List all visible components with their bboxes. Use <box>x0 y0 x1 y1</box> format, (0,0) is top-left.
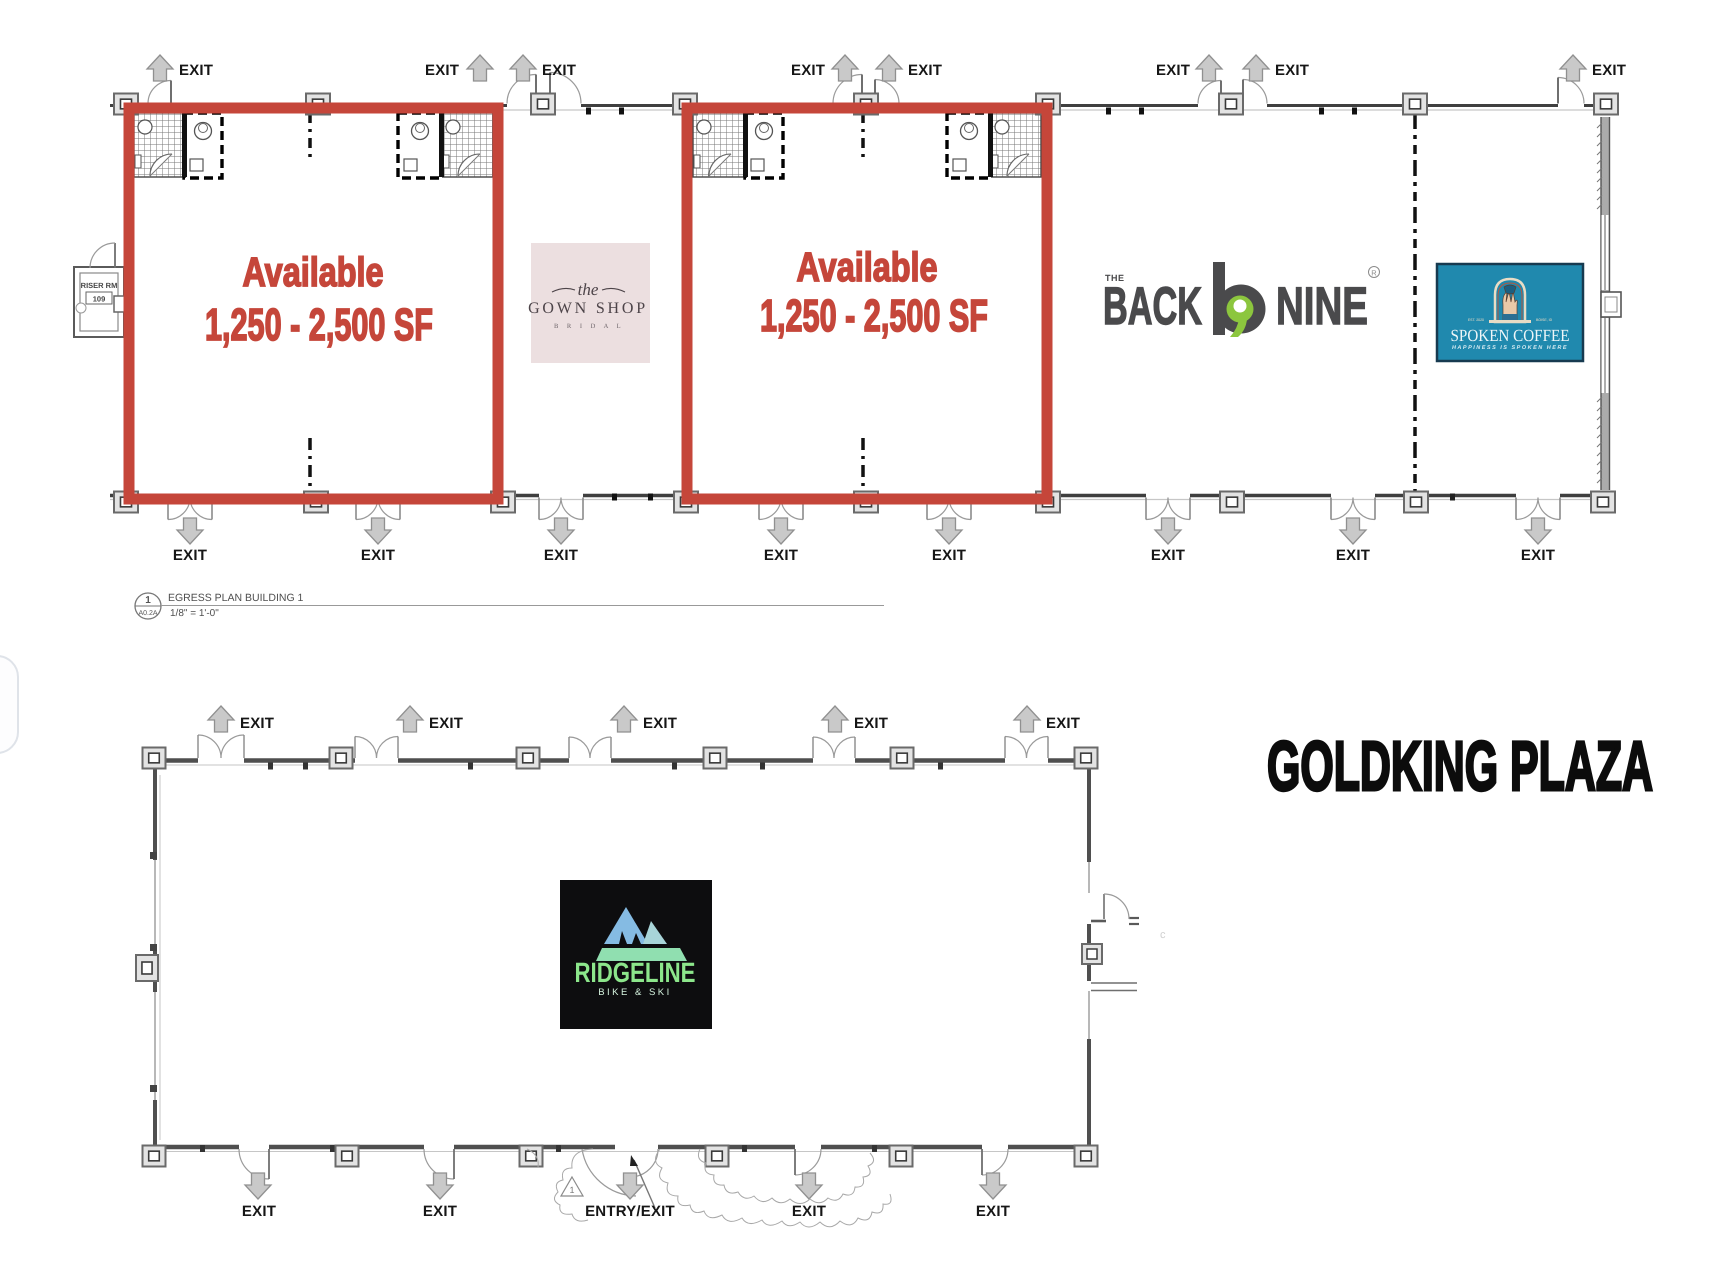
svg-text:EXIT: EXIT <box>1592 62 1626 79</box>
svg-text:EXIT: EXIT <box>932 547 966 564</box>
svg-text:GOWN SHOP: GOWN SHOP <box>528 300 648 317</box>
svg-text:EST. 2020: EST. 2020 <box>1468 318 1484 322</box>
svg-text:NINE: NINE <box>1276 277 1368 336</box>
svg-text:1,250 - 2,500 SF: 1,250 - 2,500 SF <box>205 299 433 350</box>
svg-text:1: 1 <box>145 595 151 606</box>
svg-text:EXIT: EXIT <box>179 62 213 79</box>
svg-text:EXIT: EXIT <box>173 547 207 564</box>
svg-text:HAPPINESS IS SPOKEN HERE: HAPPINESS IS SPOKEN HERE <box>1452 345 1568 351</box>
svg-text:EXIT: EXIT <box>240 715 274 732</box>
svg-text:SPOKEN COFFEE: SPOKEN COFFEE <box>1451 326 1570 345</box>
svg-text:EXIT: EXIT <box>1156 62 1190 79</box>
svg-text:1,250 - 2,500 SF: 1,250 - 2,500 SF <box>760 290 988 341</box>
svg-text:ENTRY/EXIT: ENTRY/EXIT <box>585 1203 675 1220</box>
svg-text:BIKE & SKI: BIKE & SKI <box>598 987 672 998</box>
svg-text:EXIT: EXIT <box>1151 547 1185 564</box>
svg-text:EXIT: EXIT <box>544 547 578 564</box>
svg-text:EXIT: EXIT <box>542 62 576 79</box>
svg-text:EXIT: EXIT <box>361 547 395 564</box>
svg-text:EGRESS PLAN BUILDING 1: EGRESS PLAN BUILDING 1 <box>168 592 304 604</box>
svg-text:EXIT: EXIT <box>429 715 463 732</box>
svg-text:BOISE, ID: BOISE, ID <box>1536 318 1553 322</box>
svg-text:EXIT: EXIT <box>1046 715 1080 732</box>
svg-text:EXIT: EXIT <box>242 1203 276 1220</box>
svg-text:EXIT: EXIT <box>764 547 798 564</box>
svg-text:EXIT: EXIT <box>791 62 825 79</box>
svg-text:BACK: BACK <box>1103 277 1202 336</box>
svg-text:109: 109 <box>93 295 106 304</box>
svg-text:EXIT: EXIT <box>1521 547 1555 564</box>
svg-text:EXIT: EXIT <box>854 715 888 732</box>
svg-text:the: the <box>578 280 599 299</box>
svg-text:GOLDKING PLAZA: GOLDKING PLAZA <box>1267 727 1653 805</box>
svg-text:RISER RM: RISER RM <box>81 281 118 290</box>
svg-text:EXIT: EXIT <box>1336 547 1370 564</box>
svg-text:B R I D A L: B R I D A L <box>554 323 624 330</box>
svg-text:Available: Available <box>243 249 384 295</box>
svg-text:1/8" = 1'-0": 1/8" = 1'-0" <box>170 608 219 619</box>
svg-text:EXIT: EXIT <box>976 1203 1010 1220</box>
svg-text:R: R <box>1371 269 1377 278</box>
svg-text:EXIT: EXIT <box>908 62 942 79</box>
svg-text:EXIT: EXIT <box>425 62 459 79</box>
svg-text:Available: Available <box>797 244 938 290</box>
svg-text:EXIT: EXIT <box>792 1203 826 1220</box>
svg-text:c: c <box>1160 929 1166 941</box>
svg-text:EXIT: EXIT <box>1275 62 1309 79</box>
svg-text:RIDGELINE: RIDGELINE <box>575 957 696 988</box>
svg-text:A0.2A: A0.2A <box>138 610 157 617</box>
svg-text:EXIT: EXIT <box>643 715 677 732</box>
svg-text:EXIT: EXIT <box>423 1203 457 1220</box>
svg-text:1: 1 <box>569 1185 574 1195</box>
